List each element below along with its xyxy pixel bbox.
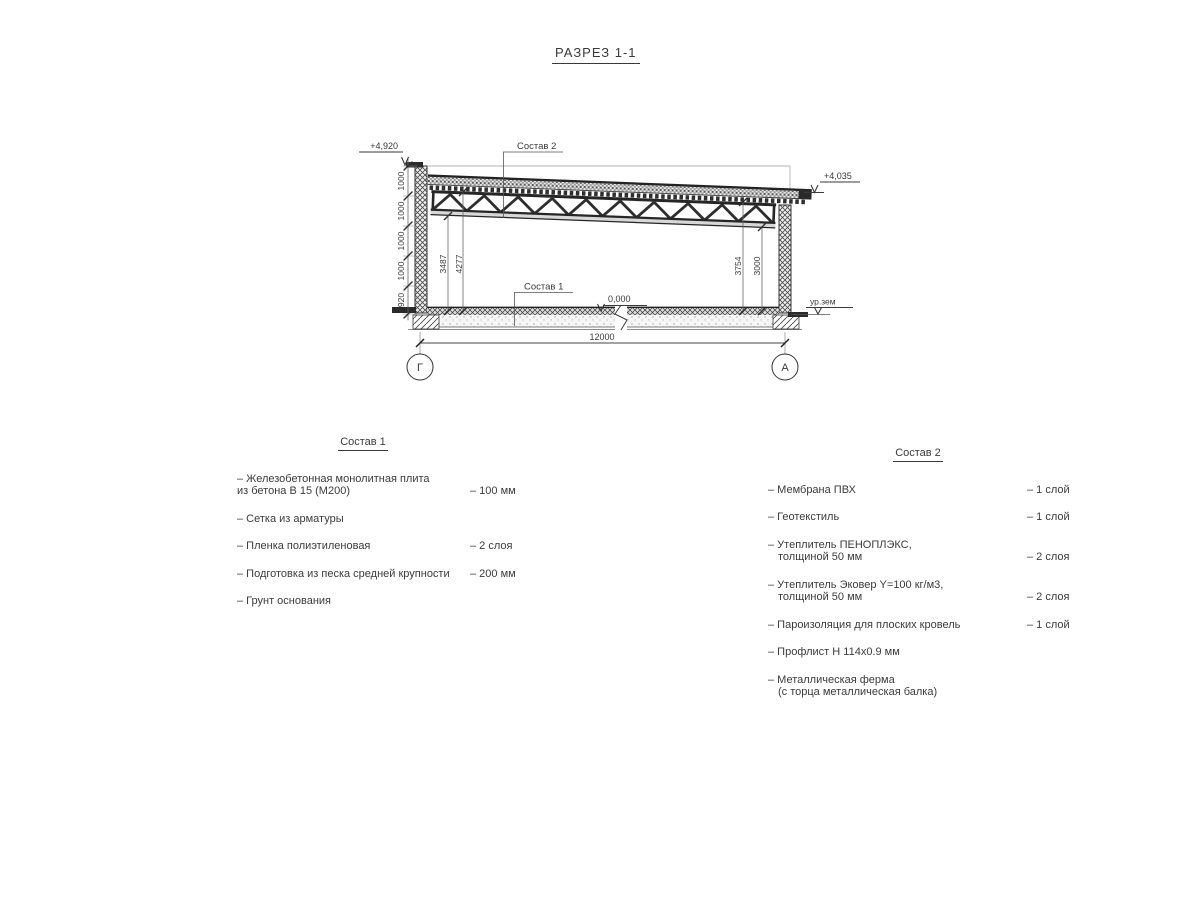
material-name: – Мембрана ПВХ	[768, 484, 1030, 497]
axis-letter: А	[781, 362, 789, 374]
list-item: – Пароизоляция для плоских кровель – 1 с…	[768, 619, 1078, 632]
list-item: – Сетка из арматуры	[237, 513, 517, 526]
sand-layer	[439, 315, 773, 327]
roof-assembly	[427, 176, 812, 230]
material-value: – 1 слой	[1027, 484, 1070, 497]
dim-12000: 12000	[589, 332, 614, 342]
roof-end-cap	[798, 190, 811, 199]
inner-dimensions: 3487 4277 3754 3000	[438, 188, 766, 315]
material-value: – 200 мм	[470, 568, 516, 581]
material-name: – Геотекстиль	[768, 511, 1030, 524]
elevation-value: 0,000	[608, 294, 631, 304]
material-name: – Железобетонная монолитная плита из бет…	[237, 473, 465, 498]
list-item: – Мембрана ПВХ – 1 слой	[768, 484, 1078, 497]
elevation-ground: ур.зем	[806, 297, 853, 315]
list-item: – Профлист Н 114х0.9 мм	[768, 646, 1078, 659]
material-name: – Утеплитель ПЕНОПЛЭКС, толщиной 50 мм	[768, 539, 1030, 564]
dim-3000: 3000	[752, 256, 762, 275]
right-wall	[779, 205, 791, 313]
dim-1000-b: 1000	[396, 201, 406, 220]
dim-3487: 3487	[438, 254, 448, 273]
elevation-arrow-icon	[811, 185, 818, 193]
callout-label: Состав 1	[524, 282, 563, 293]
material-name: – Подготовка из песка средней крупности	[237, 568, 475, 581]
material-value: – 2 слоя	[1027, 591, 1069, 604]
left-dimension-chain: 1000 1000 1000 1000 920	[396, 158, 417, 320]
dim-1000-a: 1000	[396, 171, 406, 190]
material-name: – Грунт основания	[237, 595, 475, 608]
callout-label: Состав 2	[517, 141, 556, 152]
dim-4277: 4277	[454, 254, 464, 273]
span-dimension: 12000	[416, 332, 789, 354]
material-name: – Пленка полиэтиленовая	[237, 540, 475, 553]
list-item: – Подготовка из песка средней крупности …	[237, 568, 517, 581]
foundation-block-left	[413, 315, 439, 329]
axis-letter: Г	[417, 362, 423, 374]
material-name: – Сетка из арматуры	[237, 513, 475, 526]
dim-3754: 3754	[733, 256, 743, 275]
material-value: – 1 слой	[1027, 619, 1070, 632]
list-item: – Железобетонная монолитная плита из бет…	[237, 473, 517, 498]
elevation-value: +4,920	[370, 141, 398, 151]
materials-list-1: Состав 1 – Железобетонная монолитная пли…	[237, 436, 517, 623]
concrete-slab-band	[427, 308, 779, 315]
materials-list-2: Состав 2 – Мембрана ПВХ – 1 слой – Геоте…	[768, 447, 1078, 714]
elevation-arrow-icon	[815, 308, 822, 315]
foundation-block-right	[773, 315, 799, 329]
axis-bubble-left: Г	[407, 354, 433, 380]
elevation-top-right: +4,035	[804, 171, 860, 193]
material-name: – Профлист Н 114х0.9 мм	[768, 646, 1030, 659]
elevation-top-left: +4,920	[359, 141, 409, 165]
list-item: – Утеплитель ПЕНОПЛЭКС, толщиной 50 мм –…	[768, 539, 1078, 564]
material-value: – 2 слоя	[470, 540, 512, 553]
material-name: – Пароизоляция для плоских кровель	[768, 619, 1030, 632]
cad-sheet: РАЗРЕЗ 1-1	[0, 0, 1200, 900]
list-header: Состав 1	[237, 436, 489, 449]
list-item: – Пленка полиэтиленовая – 2 слоя	[237, 540, 517, 553]
axis-bubble-right: А	[772, 354, 798, 380]
left-wall	[406, 162, 427, 313]
dim-1000-c: 1000	[396, 231, 406, 250]
material-value: – 100 мм	[470, 485, 516, 498]
elevation-value: ур.зем	[810, 297, 836, 307]
elevation-value: +4,035	[824, 171, 852, 181]
material-value: – 2 слоя	[1027, 551, 1069, 564]
dim-1000-d: 1000	[396, 261, 406, 280]
list-item: – Утеплитель Эковер Y=100 кг/м3, толщино…	[768, 579, 1078, 604]
dim-920: 920	[396, 293, 406, 307]
list-item: – Грунт основания	[237, 595, 517, 608]
list-header: Состав 2	[768, 447, 1068, 460]
list-item: – Металлическая ферма (с торца металличе…	[768, 674, 1078, 699]
list-item: – Геотекстиль – 1 слой	[768, 511, 1078, 524]
material-name: – Металлическая ферма (с торца металличе…	[768, 674, 1030, 699]
material-name: – Утеплитель Эковер Y=100 кг/м3, толщино…	[768, 579, 1030, 604]
material-value: – 1 слой	[1027, 511, 1070, 524]
